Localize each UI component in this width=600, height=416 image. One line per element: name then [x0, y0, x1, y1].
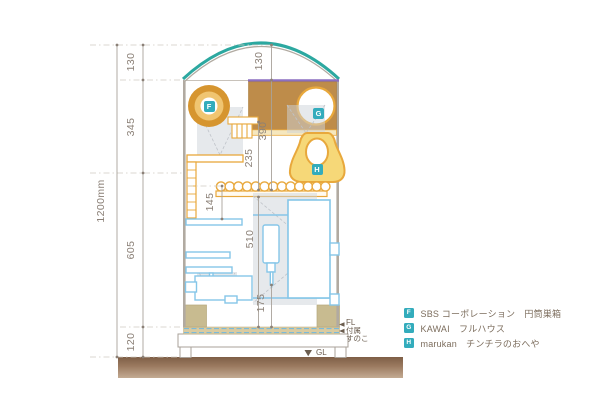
blue-shelf-3: [186, 267, 232, 273]
dim-ladder-drop: 235: [243, 136, 255, 180]
legend-row-g: G KAWAI フルハウス: [404, 323, 561, 333]
tag-h-room: H: [312, 164, 323, 175]
wheel-mount: [330, 243, 339, 255]
dim-bottle-height: 175: [255, 281, 267, 325]
legend-text-g: KAWAI フルハウス: [421, 322, 506, 335]
legend-row-f: F SBS コーポレーション 円筒巣箱: [404, 308, 561, 318]
tag-f-nest: F: [204, 101, 215, 112]
dim-seg-middle: 605: [125, 228, 137, 272]
sunoko-floor: [184, 327, 340, 334]
legend-text-h: marukan チンチラのおへや: [421, 337, 540, 350]
sunoko-label-2: すのこ: [346, 335, 369, 343]
gl-label: GL: [316, 349, 327, 357]
dim-seg-upper: 345: [125, 105, 137, 149]
blue-step-2: [225, 296, 237, 303]
dim-arch-inner: 130: [253, 39, 265, 83]
dim-seg-arch: 130: [125, 40, 137, 84]
legend-tag-g: G: [404, 323, 414, 333]
running-wheel-panel: [288, 200, 330, 298]
litter-tray-right: [317, 305, 340, 327]
blue-nest-box: [195, 276, 252, 300]
dim-perch-to-floor: 510: [244, 217, 256, 261]
dim-seg-base: 120: [125, 320, 137, 364]
cage-section-drawing: [0, 0, 600, 416]
blue-step: [186, 282, 197, 292]
dim-shelf-gap: 145: [204, 180, 216, 224]
legend-row-h: H marukan チンチラのおへや: [404, 338, 561, 348]
wall-bracket: [330, 294, 339, 305]
diagram-canvas: 1200mm 130 345 605 120 130 390 235 145 5…: [0, 0, 600, 416]
legend-tag-f: F: [404, 308, 414, 318]
blue-shelf-2: [186, 252, 230, 258]
dim-box-drop: 390: [257, 109, 269, 153]
legend-text-f: SBS コーポレーション 円筒巣箱: [421, 307, 562, 320]
tag-g-house: G: [313, 108, 324, 119]
ground-bar: [118, 357, 403, 378]
legend: F SBS コーポレーション 円筒巣箱 G KAWAI フルハウス H maru…: [404, 308, 561, 353]
sunoko-arrow: [339, 329, 345, 334]
litter-tray-left: [184, 305, 207, 327]
gl-arrow: [305, 350, 313, 356]
dim-overall-height: 1200mm: [95, 179, 107, 223]
legend-tag-h: H: [404, 338, 414, 348]
